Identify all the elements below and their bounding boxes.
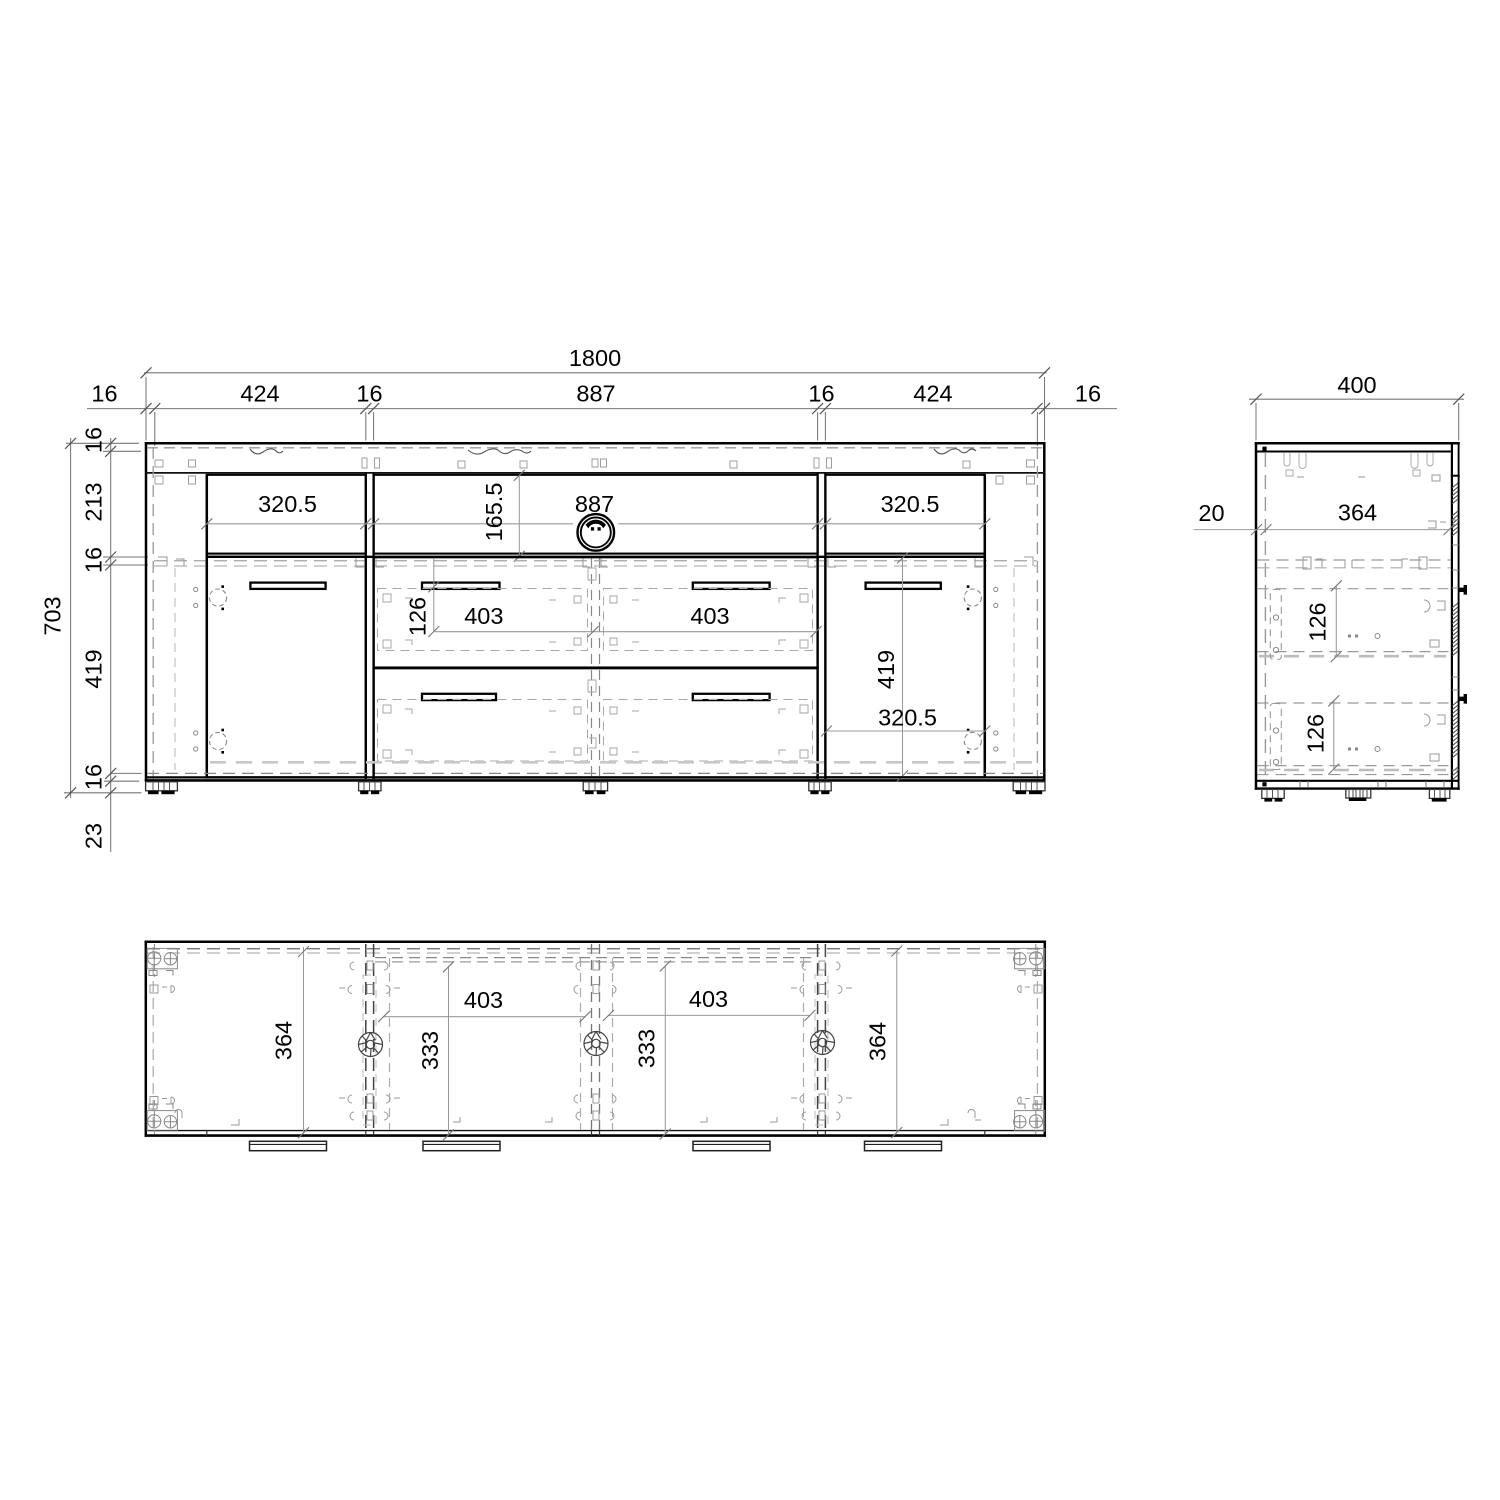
svg-text:16: 16: [81, 764, 107, 790]
svg-text:320.5: 320.5: [878, 705, 937, 731]
svg-text:320.5: 320.5: [881, 491, 940, 517]
svg-text:20: 20: [1198, 500, 1224, 526]
svg-text:16: 16: [1075, 381, 1101, 407]
svg-text:126: 126: [1303, 714, 1329, 753]
svg-text:16: 16: [81, 547, 107, 573]
svg-text:887: 887: [575, 491, 614, 517]
svg-text:403: 403: [464, 603, 503, 629]
svg-text:364: 364: [865, 1022, 891, 1061]
svg-text:165.5: 165.5: [481, 483, 507, 542]
svg-text:126: 126: [405, 597, 431, 636]
svg-text:424: 424: [240, 381, 279, 407]
svg-text:23: 23: [81, 823, 107, 849]
svg-text:424: 424: [913, 381, 952, 407]
svg-text:703: 703: [40, 596, 66, 635]
svg-text:16: 16: [81, 427, 107, 453]
svg-text:887: 887: [576, 381, 615, 407]
svg-text:419: 419: [81, 649, 107, 688]
svg-text:419: 419: [873, 650, 899, 689]
svg-text:16: 16: [91, 381, 117, 407]
svg-text:320.5: 320.5: [258, 491, 317, 517]
svg-text:333: 333: [417, 1031, 443, 1070]
svg-text:16: 16: [356, 381, 382, 407]
svg-text:403: 403: [464, 987, 503, 1013]
svg-text:403: 403: [689, 986, 728, 1012]
svg-text:364: 364: [1338, 500, 1377, 526]
svg-text:126: 126: [1305, 602, 1331, 641]
svg-text:213: 213: [81, 482, 107, 521]
svg-text:1800: 1800: [569, 345, 621, 371]
svg-text:333: 333: [634, 1029, 660, 1068]
svg-text:400: 400: [1337, 372, 1376, 398]
svg-text:16: 16: [808, 381, 834, 407]
svg-text:403: 403: [690, 603, 729, 629]
svg-text:364: 364: [271, 1021, 297, 1060]
